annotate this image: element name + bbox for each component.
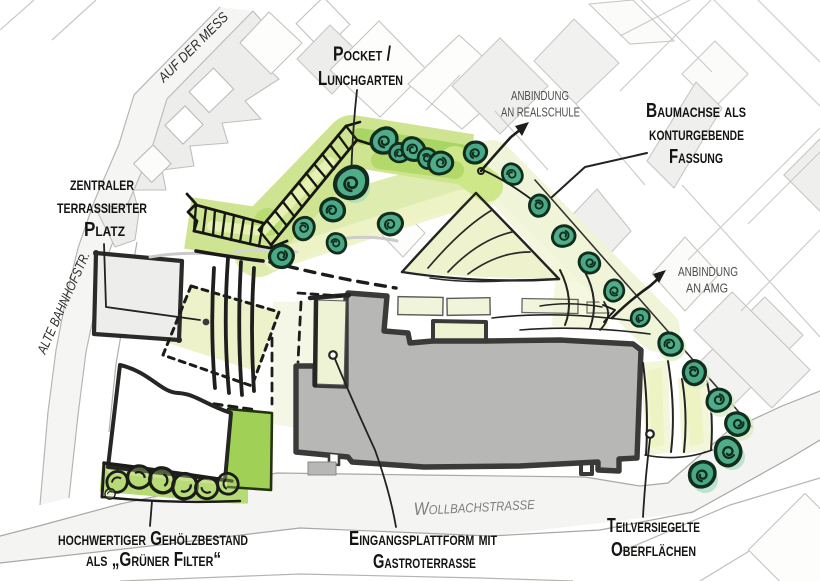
svg-text:AN REALSCHULE: AN REALSCHULE	[501, 105, 580, 120]
svg-text:als „Grüner Filter“: als „Grüner Filter“	[86, 549, 221, 571]
svg-text:Oberflächen: Oberflächen	[611, 539, 696, 561]
svg-text:zentraler: zentraler	[70, 173, 134, 195]
svg-text:Eingangsplattform mit: Eingangsplattform mit	[349, 528, 497, 550]
svg-text:Teilversiegelte: Teilversiegelte	[607, 515, 700, 537]
svg-text:Platz: Platz	[84, 219, 125, 241]
svg-text:Lunchgarten: Lunchgarten	[318, 68, 403, 90]
svg-text:Gastroterrasse: Gastroterrasse	[373, 551, 476, 573]
svg-text:Pocket /: Pocket /	[333, 44, 391, 66]
svg-text:terrassierter: terrassierter	[57, 196, 147, 218]
svg-text:ANBINDUNG: ANBINDUNG	[678, 264, 738, 279]
svg-text:Fassung: Fassung	[669, 146, 723, 168]
svg-text:ANBINDUNG: ANBINDUNG	[511, 88, 569, 103]
svg-text:AN AMG: AN AMG	[686, 281, 728, 296]
svg-text:hochwertiger Gehölzbestand: hochwertiger Gehölzbestand	[58, 528, 248, 550]
svg-text:Baumachse als: Baumachse als	[646, 100, 746, 122]
svg-text:konturgebende: konturgebende	[649, 123, 744, 145]
